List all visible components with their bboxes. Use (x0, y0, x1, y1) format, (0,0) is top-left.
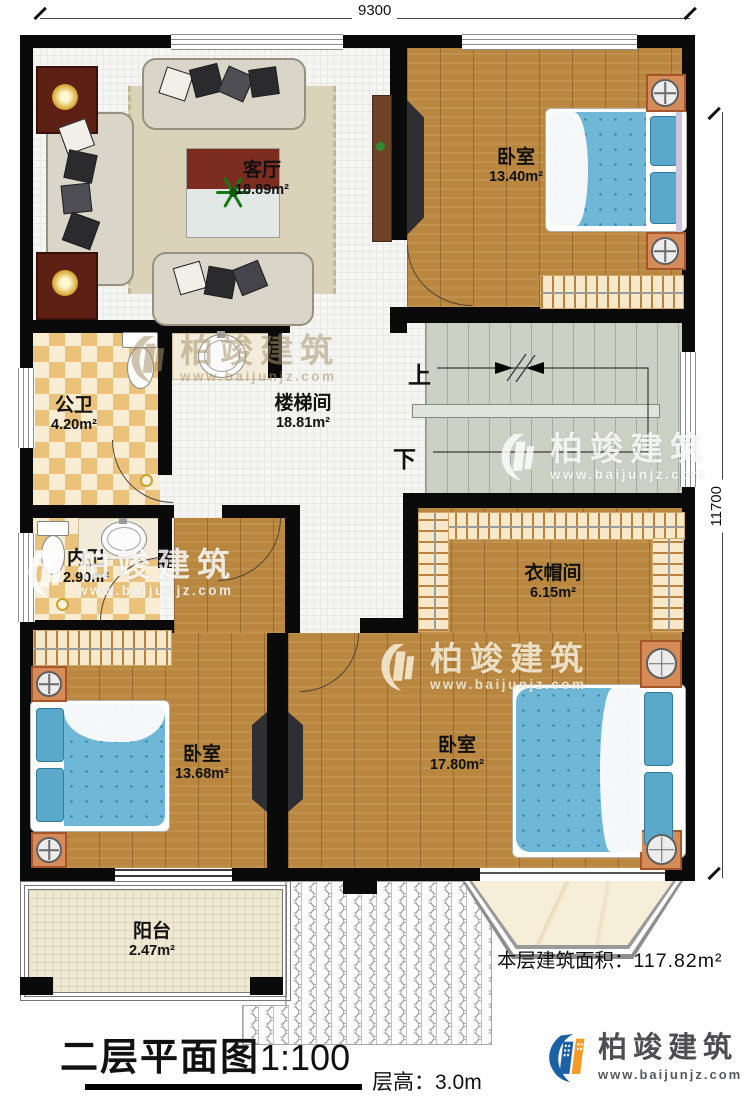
floor-height-annotation: 层高：3.0m (372, 1066, 482, 1096)
label-living: 客厅 18.89m² (235, 160, 289, 200)
bed-blanket-fold (548, 112, 588, 226)
balcony-sliding-door (115, 869, 232, 871)
room-area: 2.47m² (129, 943, 175, 960)
room-area: 13.68m² (175, 766, 229, 783)
top-dimension-label: 9300 (352, 2, 397, 19)
sofa-cushion (63, 149, 97, 183)
wall-living-bedroom-upper (390, 48, 407, 240)
room-name: 客厅 (235, 160, 289, 182)
floor-area-annotation: 本层建筑面积：117.82m² (497, 944, 722, 973)
roof-tile-area (285, 881, 492, 1045)
nightstand-lamp-icon (651, 237, 679, 265)
nightstand-lamp-icon (646, 834, 677, 865)
room-area: 6.15m² (524, 585, 581, 602)
table-lamp-icon (52, 84, 78, 110)
table-lamp-icon (52, 270, 78, 296)
bay-window-sill (480, 872, 665, 874)
plan-scale-text: 1:100 (260, 1037, 350, 1078)
wall-stairs-bottom (403, 493, 695, 508)
room-area: 4.20m² (51, 417, 97, 434)
cloakroom-rack-top (443, 512, 685, 540)
bed-blanket-fold (600, 688, 642, 852)
label-balcony: 阳台 2.47m² (129, 921, 175, 961)
tv-icon (407, 100, 424, 235)
nightstand-lamp-icon (646, 648, 677, 679)
wall-bottom-right-a (285, 868, 480, 881)
pillow (650, 172, 678, 224)
nightstand-lamp-icon (651, 79, 679, 107)
brand-logo-block: 柏竣建筑 www.baijunjz.com (544, 1030, 742, 1084)
room-name: 阳台 (129, 921, 175, 943)
nightstand-lamp-icon (36, 671, 62, 697)
wall-vanity-right (268, 325, 282, 378)
room-name: 楼梯间 (274, 393, 331, 415)
room-name: 内卫 (63, 548, 109, 570)
room-area: 18.81m² (274, 415, 331, 432)
sofa-cushion (61, 183, 93, 215)
sink-icon (198, 334, 246, 378)
label-public-bath: 公卫 4.20m² (51, 395, 97, 435)
toilet-icon (37, 521, 69, 536)
room-name: 卧室 (175, 744, 229, 766)
room-name: 卧室 (430, 735, 484, 757)
brand-name: 柏竣建筑 (598, 1034, 742, 1063)
dimension-tick (707, 107, 720, 120)
wall-between-bedrooms (267, 633, 288, 868)
label-cloakroom: 衣帽间 6.15m² (524, 563, 581, 603)
wall-bottom-left-b (232, 868, 285, 881)
plant-small-icon (376, 142, 385, 151)
label-bedroom-bottom-right: 卧室 17.80m² (430, 735, 484, 775)
window-innerbath-left (18, 533, 35, 622)
nightstand-lamp-icon (36, 837, 62, 863)
sink-tap (119, 518, 127, 524)
pillow (36, 768, 64, 822)
bed-runner (676, 112, 682, 232)
dimension-tick (707, 867, 720, 880)
balcony-corner-block (250, 977, 283, 995)
plan-title: 二层平面图1:100 (60, 1026, 350, 1081)
room-area: 13.40m² (489, 169, 543, 186)
room-area: 18.89m² (235, 182, 289, 199)
sofa-cushion (248, 66, 280, 98)
room-name: 衣帽间 (524, 563, 581, 585)
floor-area-value: 117.82m² (634, 950, 723, 972)
dimension-tick (683, 7, 696, 20)
tv-icon (252, 712, 267, 812)
plan-title-text: 二层平面图 (60, 1037, 260, 1079)
cloakroom-rack-left (418, 512, 449, 632)
room-area: 2.90m² (63, 570, 109, 587)
balcony-sliding-door-leaf (115, 875, 232, 877)
wall-bedroomTR-bottom (398, 307, 695, 323)
stairs-down-label: 下 (393, 440, 416, 474)
wall-corridor-left (285, 505, 300, 633)
stairs-direction-line (425, 323, 682, 493)
brand-url: www.baijunjz.com (598, 1068, 742, 1081)
floor-drain-icon (56, 598, 69, 611)
sink-tap (217, 331, 225, 338)
room-name: 公卫 (51, 395, 97, 417)
label-inner-bath: 内卫 2.90m² (63, 548, 109, 588)
cloakroom-rack-right (652, 538, 684, 632)
pillow (36, 708, 64, 762)
wall-bottom-left-a (20, 868, 115, 881)
window-living-top (171, 33, 343, 50)
window-publicbath-left (18, 368, 35, 448)
wardrobe-bedroomTR (540, 275, 684, 309)
wall-stub-roof (343, 881, 377, 894)
wall-bath-divider (20, 505, 174, 518)
label-stair-hall: 楼梯间 18.81m² (274, 393, 331, 433)
room-name: 卧室 (489, 147, 543, 169)
toilet-bowl (41, 535, 65, 575)
toilet-bowl (127, 347, 154, 389)
brand-logo-icon (544, 1030, 590, 1084)
pillow (650, 116, 678, 166)
pillow (644, 692, 673, 766)
title-underline (85, 1084, 362, 1090)
label-bedroom-top-right: 卧室 13.40m² (489, 147, 543, 187)
stairs-up-label: 上 (408, 356, 431, 390)
window-bedroomTR-top (462, 33, 637, 50)
window-stairs-right (680, 352, 697, 487)
tv-icon (288, 712, 303, 812)
room-area: 17.80m² (430, 757, 484, 774)
label-bedroom-bottom-left: 卧室 13.68m² (175, 744, 229, 784)
floor-plan-page: { "dimensions": { "width_label": "9300",… (0, 0, 750, 1103)
right-dimension-label: 11700 (708, 480, 725, 533)
floor-area-label: 本层建筑面积： (497, 950, 634, 972)
tv-cabinet (372, 95, 392, 242)
wall-cloak-left (403, 493, 418, 633)
wardrobe-bedroomBL (33, 630, 172, 666)
balcony-corner-block (20, 977, 53, 995)
toilet-icon (122, 332, 158, 348)
